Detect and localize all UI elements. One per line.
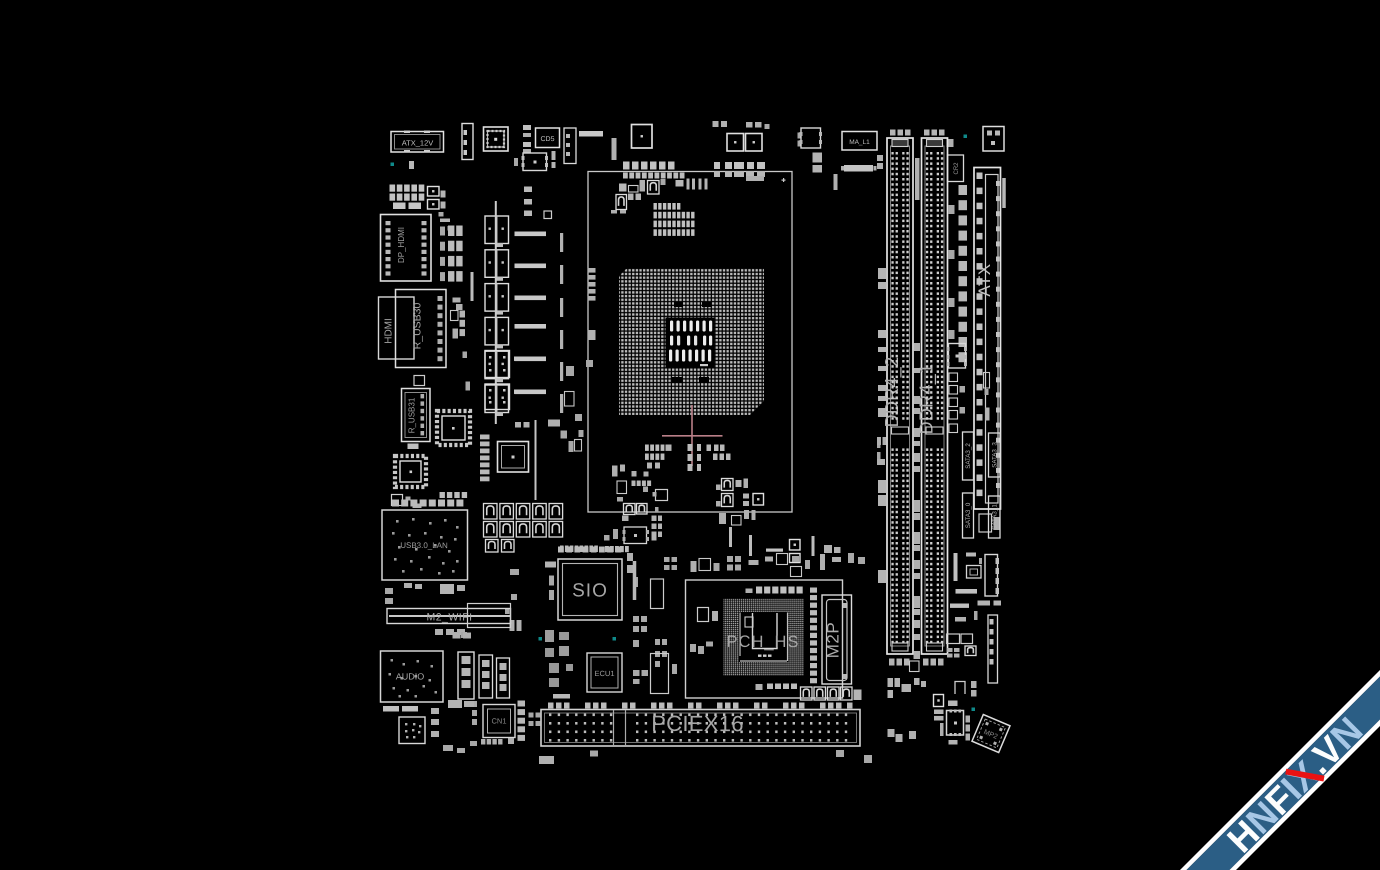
- svg-text:SATA3_0: SATA3_0: [965, 502, 972, 528]
- svg-text:CN1: CN1: [491, 716, 506, 725]
- svg-text:SATA3_1: SATA3_1: [991, 504, 998, 530]
- svg-text:ECU1: ECU1: [594, 669, 614, 678]
- svg-text:ATX_12V: ATX_12V: [402, 138, 434, 147]
- svg-text:SIO: SIO: [572, 580, 608, 601]
- svg-text:R_USB31: R_USB31: [408, 397, 417, 433]
- svg-text:DP_HDMI: DP_HDMI: [397, 227, 406, 263]
- svg-text:SATA3_2: SATA3_2: [965, 443, 972, 469]
- svg-text:CD5: CD5: [540, 136, 554, 143]
- svg-text:M2_WIFI: M2_WIFI: [426, 611, 472, 623]
- svg-text:MA_L1: MA_L1: [849, 139, 870, 146]
- svg-text:USB3.0_LAN: USB3.0_LAN: [400, 541, 448, 550]
- svg-text:AUDIO: AUDIO: [396, 671, 425, 681]
- svg-text:PCIEX16: PCIEX16: [651, 711, 744, 736]
- svg-text:HDMI: HDMI: [384, 318, 395, 344]
- svg-text:ATX: ATX: [975, 263, 994, 296]
- svg-text:M2P: M2P: [824, 622, 843, 658]
- svg-text:CR2: CR2: [954, 162, 960, 175]
- svg-text:PCH_HS: PCH_HS: [727, 633, 800, 651]
- svg-text:SATA3_3: SATA3_3: [991, 442, 998, 468]
- svg-text:R_USB30: R_USB30: [412, 303, 424, 350]
